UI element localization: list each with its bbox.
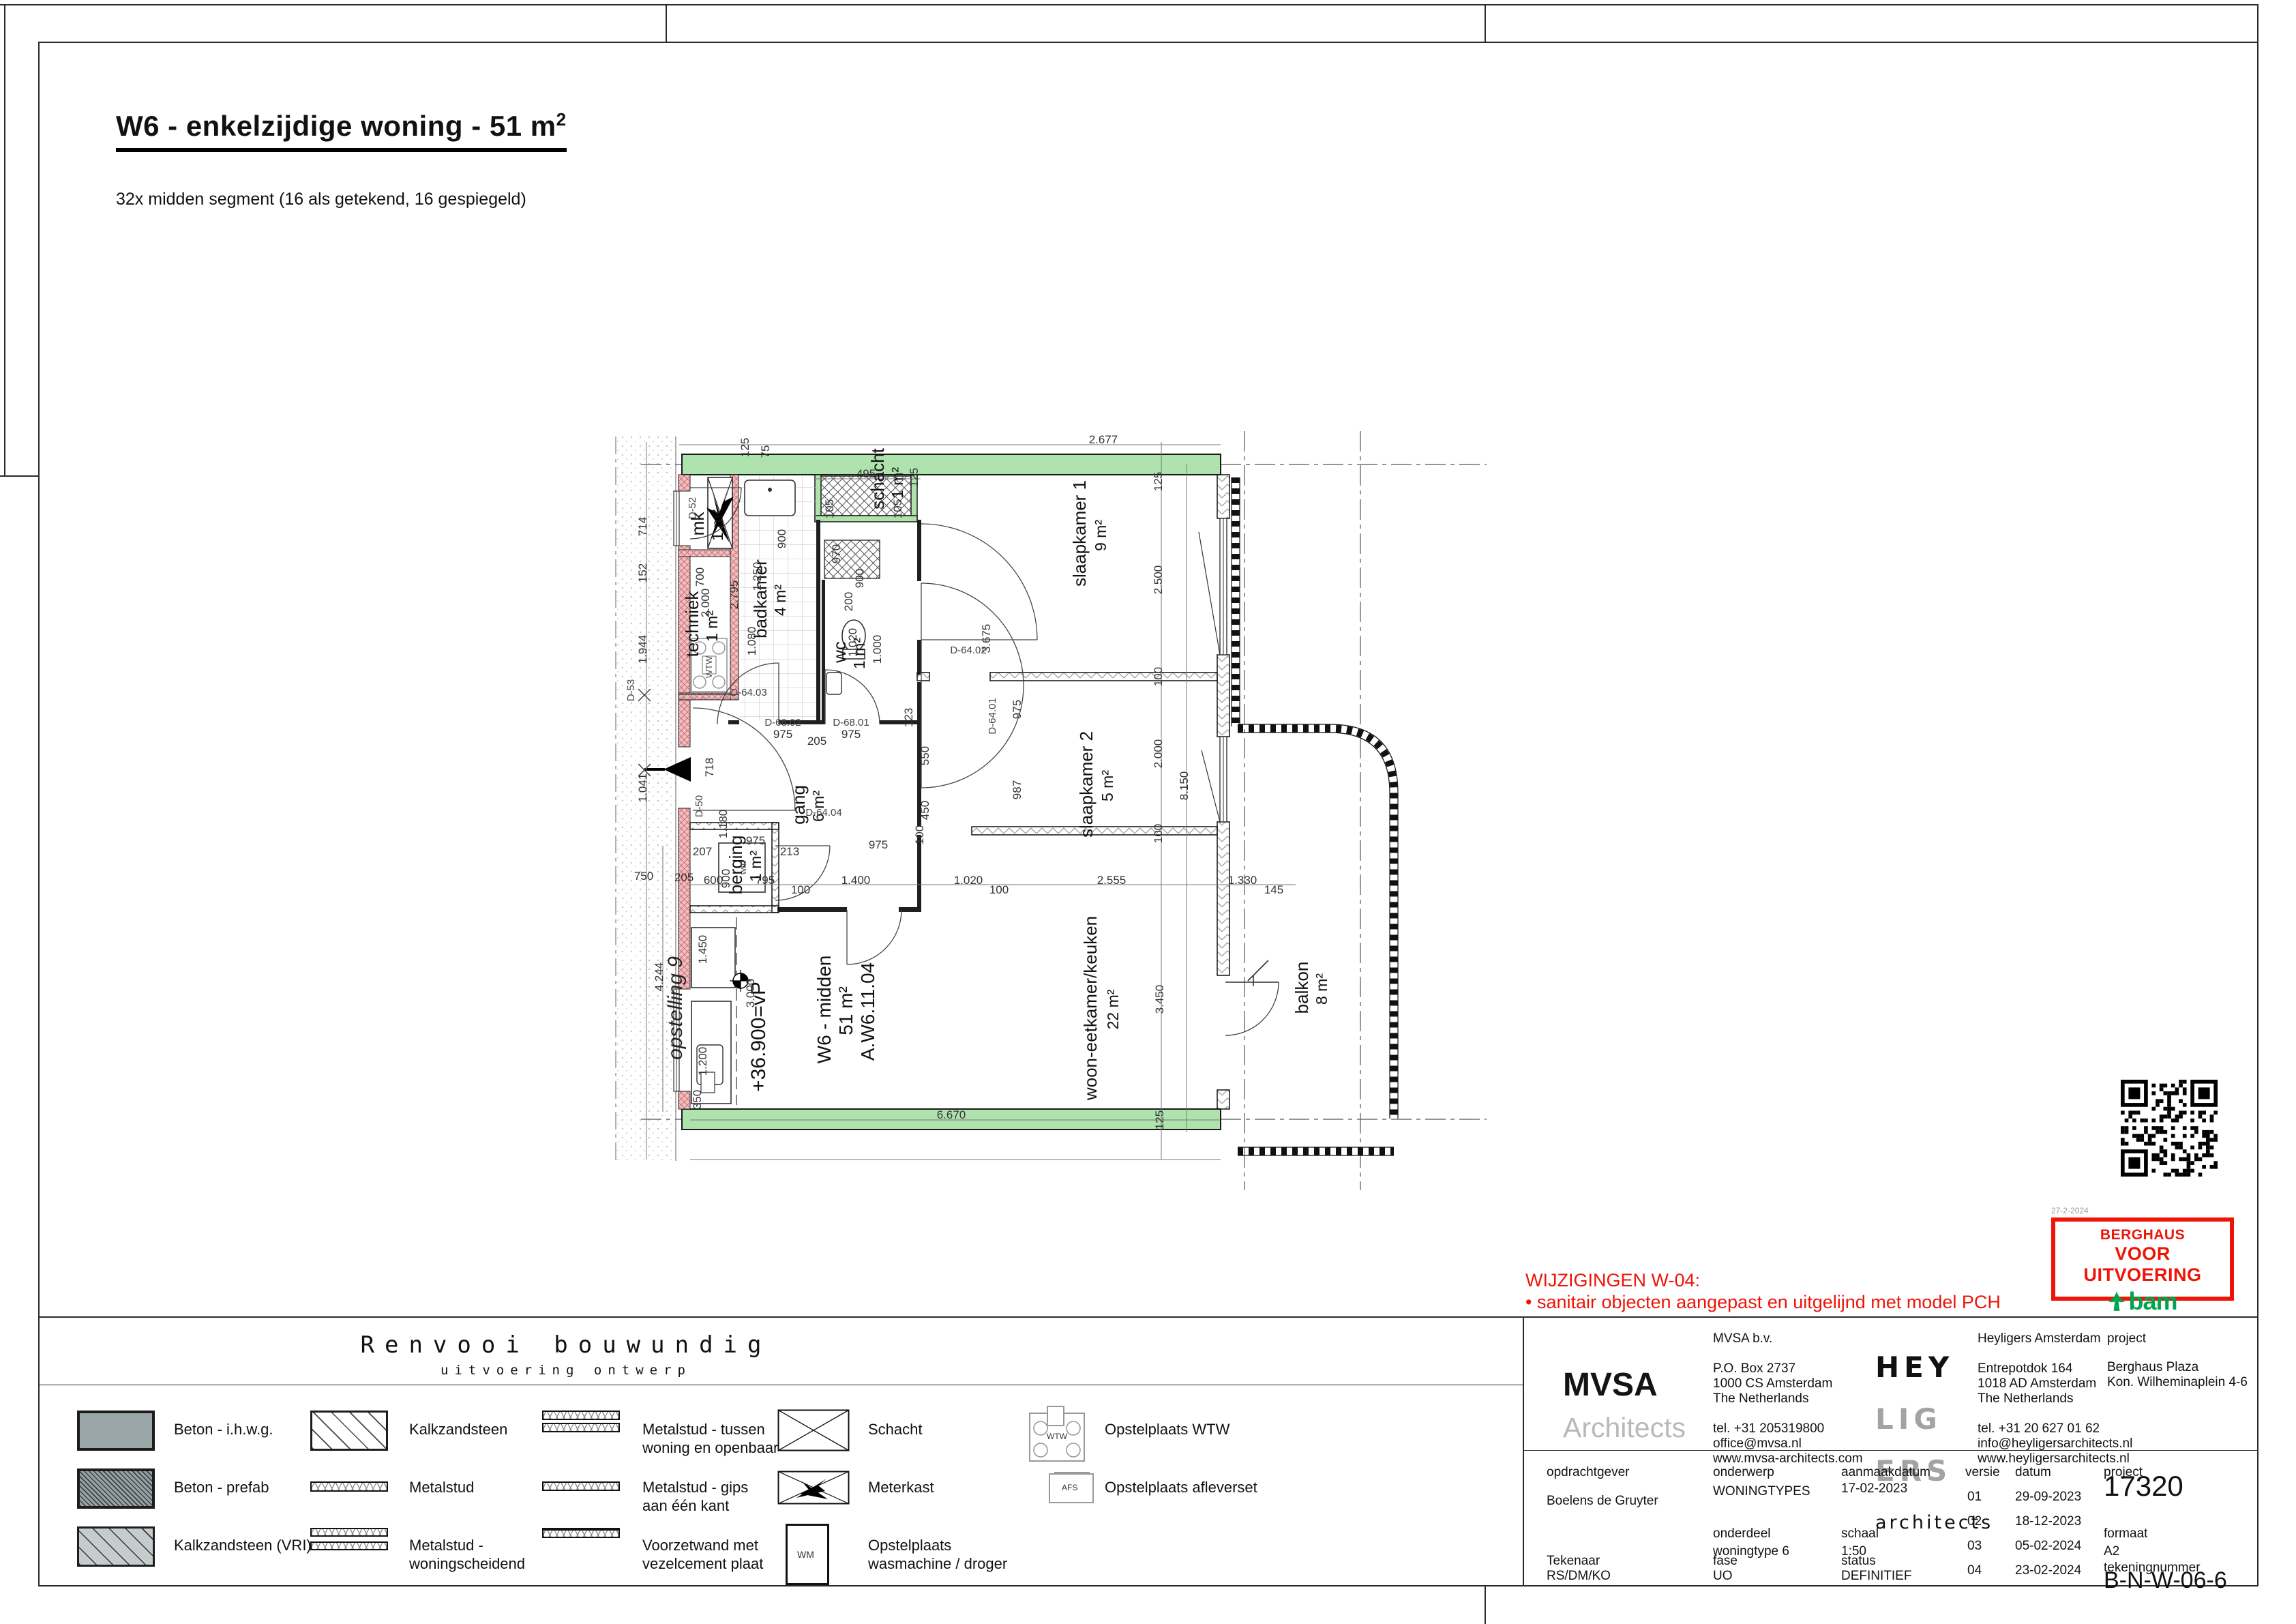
plan-door-label: D-64.04: [805, 807, 841, 818]
plan-door-label: D-68.02: [764, 717, 801, 728]
plan-dim-label: 2.555: [1097, 874, 1127, 887]
legend-swatch-wasmachine: WM: [786, 1524, 829, 1585]
plan-dim-label: 3.450: [1153, 985, 1166, 1014]
qr-code: [2121, 1080, 2218, 1177]
legend-label-wasmachine: Opstelplaats wasmachine / droger: [868, 1536, 1007, 1573]
versie-01: 01: [1967, 1490, 1982, 1505]
wm-box-text: WM: [797, 1549, 814, 1560]
sheet-left-edge: [4, 4, 5, 476]
tekenaar-value: RS/DM/KO: [1547, 1569, 1611, 1584]
plan-dim-label: 100: [791, 883, 810, 896]
changes-title: WIJZIGINGEN W-04:: [1525, 1270, 1700, 1291]
plan-dim-label: 350: [691, 1090, 704, 1109]
plan-big-label: A.W6.11.04: [857, 962, 878, 1061]
legend-titleblock-divider: [1523, 1316, 1524, 1586]
plan-dim-label: 125: [908, 468, 921, 487]
drawing-sheet: W6 - enkelzijdige woning - 51 m2 32x mid…: [0, 0, 2296, 1624]
approval-stamp: BERGHAUS VOOR UITVOERING bam: [2051, 1217, 2234, 1301]
opdrachtgever-label: opdrachtgever: [1547, 1465, 1629, 1480]
fase-value: UO: [1713, 1569, 1733, 1584]
legend-label-metalstud: Metalstud: [409, 1478, 474, 1496]
plan-dim-label: 495: [856, 467, 876, 480]
plan-dim-label: 2.795: [728, 580, 741, 610]
plan-room-label: slaapkamer 2: [1076, 731, 1097, 838]
wtw-box-text: WTW: [1047, 1432, 1068, 1441]
opdrachtgever-value: Boelens de Gruyter: [1547, 1494, 1658, 1509]
plan-dim-label: 1.020: [954, 874, 983, 887]
legend-label-kalkzandsteen: Kalkzandsteen: [409, 1420, 507, 1438]
legend-swatch-metalstud-gips: [542, 1481, 620, 1491]
legend-label-beton-prefab: Beton - prefab: [174, 1478, 269, 1496]
tekenaar-label: Tekenaar: [1547, 1554, 1600, 1569]
plan-dim-label: 4.244: [653, 962, 666, 992]
legend-swatch-afleverset: AFS: [1049, 1473, 1094, 1503]
plan-dim-label: 1.944: [636, 635, 649, 664]
plan-dim-label: 1.000: [871, 635, 884, 664]
page-title-text: W6 - enkelzijdige woning - 51 m: [116, 110, 556, 142]
plan-door-label: D-64.01: [987, 698, 998, 734]
plan-door-label: D-50: [694, 795, 705, 818]
legend-swatch-wtw: WTW: [1026, 1404, 1088, 1464]
plan-dim-label: 100: [913, 825, 926, 844]
mvsa-logo-line1: MVSA: [1563, 1366, 1686, 1404]
legend-swatch-metalstud: [310, 1481, 388, 1492]
plan-dim-label: 2.677: [1089, 433, 1118, 446]
plan-dim-label: 3.000: [744, 979, 757, 1008]
legend-swatch-metalstud-tussen-a: [542, 1411, 620, 1420]
balcony-railing: [1232, 477, 1398, 1155]
versie-03: 03: [1967, 1539, 1982, 1554]
plan-dim-label: 700: [694, 567, 706, 587]
page-title-sup: 2: [556, 109, 567, 130]
legend-swatch-kalkzandsteen: [310, 1411, 388, 1451]
mvsa-address: MVSA b.v. P.O. Box 2737 1000 CS Amsterda…: [1713, 1331, 1863, 1466]
plan-dim-label: 750: [634, 870, 653, 883]
onderdeel-label: onderdeel: [1713, 1526, 1771, 1541]
plan-dim-label: 100: [1152, 824, 1165, 843]
plan-dim-label: 125: [1153, 1110, 1166, 1130]
plan-dim-label: 207: [693, 845, 712, 858]
plan-area-label: 4 m²: [771, 585, 789, 616]
plan-dim-label: 975: [746, 834, 765, 847]
plan-dim-label: 975: [841, 728, 861, 741]
schaal-label: schaal: [1841, 1526, 1879, 1541]
legend-label-beton-ihwg: Beton - i.h.w.g.: [174, 1420, 273, 1438]
plan-dim-label: 100: [1152, 667, 1165, 686]
fase-label: fase: [1713, 1554, 1738, 1569]
aanmaakdatum-value: 17-02-2023: [1841, 1481, 1907, 1496]
plan-dim-label: 550: [919, 746, 931, 765]
plan-dim-label: 100: [989, 883, 1009, 896]
plan-area-label: 8 m²: [1313, 973, 1330, 1005]
plan-area-label: 9 m²: [1092, 520, 1109, 551]
status-value: DEFINITIEF: [1841, 1569, 1911, 1584]
legend-swatch-meterkast: [777, 1471, 850, 1505]
legend-swatch-metalstud-woningscheidend-b: [310, 1541, 388, 1550]
legend-label-schacht: Schacht: [868, 1420, 923, 1438]
plan-dim-label: 205: [674, 871, 694, 884]
plan-dim-label: 200: [842, 592, 855, 611]
legend-label-kalkzandsteen-vri: Kalkzandsteen (VRI): [174, 1536, 312, 1554]
plan-door-label: D-53: [625, 679, 637, 702]
fold-mark-left: [0, 475, 40, 477]
legend-swatch-beton-ihwg: [77, 1411, 155, 1451]
plan-dim-label: 1.041: [636, 773, 649, 803]
plan-dim-label: 987: [1011, 780, 1024, 799]
plan-fix-label: WTW: [704, 655, 714, 678]
plan-dim-label: 975: [773, 728, 792, 741]
sheet-top-edge: [0, 4, 2258, 5]
project-name: Berghaus Plaza: [2107, 1360, 2198, 1375]
project-num: 17320: [2104, 1479, 2183, 1494]
legend-label-voorzetwand: Voorzetwand met vezelcement plaat: [642, 1536, 763, 1573]
versie-04: 04: [1967, 1563, 1982, 1578]
plan-dim-label: 1.330: [1228, 874, 1257, 887]
legend-title: Renvooi bouwundig: [259, 1331, 873, 1359]
plan-room-label: woon-eetkamer/keuken: [1080, 916, 1101, 1101]
page-title: W6 - enkelzijdige woning - 51 m2: [116, 109, 567, 152]
legend-subtitle: uitvoering ontwerp: [259, 1363, 873, 1378]
plan-dim-label: 2.000: [1152, 739, 1165, 769]
legend-swatch-schacht: [777, 1409, 850, 1451]
plan-dim-label: 105: [891, 499, 904, 518]
legend-swatch-metalstud-woningscheidend-a: [310, 1528, 388, 1537]
plan-dim-label: 105: [823, 499, 836, 518]
project-address: Kon. Wilheminaplein 4-6: [2107, 1375, 2248, 1390]
frame-left: [38, 42, 40, 1586]
stamp-status: VOOR UITVOERING: [2055, 1243, 2230, 1286]
plan-dim-label: 718: [703, 758, 716, 777]
plan-dim-label: 125: [739, 438, 751, 457]
onderwerp-value: WONINGTYPES: [1713, 1484, 1810, 1499]
plan-dim-label: 900: [775, 529, 788, 548]
stamp-date-note: 27-2-2024: [2051, 1206, 2089, 1215]
plan-dim-label: 1.400: [841, 874, 871, 887]
plan-dim-label: 450: [919, 801, 931, 820]
plan-dim-label: 213: [780, 845, 799, 858]
datum-01: 29-09-2023: [2015, 1490, 2081, 1505]
sheet-right-edge: [2257, 4, 2258, 1586]
legend-header-underline: [38, 1385, 1523, 1385]
plan-dim-label: 975: [1011, 700, 1024, 719]
plan-door-label: D-64.02: [950, 645, 986, 656]
mvsa-logo: MVSA Architects: [1563, 1354, 1686, 1456]
plan-door-label: D-64.03: [730, 687, 766, 698]
plan-dim-label: 795: [756, 874, 775, 887]
plan-dim-label: 900: [719, 869, 732, 888]
afs-box-text: AFS: [1062, 1483, 1077, 1492]
bam-wordmark: bam: [2128, 1287, 2177, 1316]
legend-swatch-metalstud-tussen-b: [542, 1423, 620, 1432]
aanmaakdatum-label: aanmaakdatum: [1841, 1465, 1930, 1480]
legend-label-meterkast: Meterkast: [868, 1478, 934, 1496]
datum-02: 18-12-2023: [2015, 1514, 2081, 1529]
heyligers-address: Heyligers Amsterdam Entrepotdok 164 1018…: [1978, 1331, 2132, 1466]
plan-dim-label: 714: [636, 517, 649, 536]
plan-dim-label: 1.180: [717, 810, 730, 839]
versie-label: versie: [1965, 1465, 2000, 1480]
plan-door-label: D-68.01: [833, 717, 869, 728]
plan-dim-label: 900: [853, 569, 866, 588]
plan-dim-label: 125: [1152, 472, 1165, 491]
plan-big-label: W6 - midden: [814, 956, 835, 1064]
legend-label-metalstud-woningscheidend: Metalstud - woningscheidend: [409, 1536, 525, 1573]
plan-dim-label: 6.670: [937, 1108, 966, 1121]
legend-label-metalstud-gips: Metalstud - gips aan één kant: [642, 1478, 748, 1515]
tekeningnummer-value: B-N-W-06-6: [2104, 1573, 2227, 1588]
plan-dim-label: 970: [830, 544, 843, 563]
legend-swatch-voorzetwand: [542, 1528, 620, 1538]
plan-room-label: gang: [788, 785, 809, 825]
datum-03: 05-02-2024: [2015, 1539, 2081, 1554]
plan-area-label: 5 m²: [1099, 770, 1116, 801]
legend-label-afleverset: Opstelplaats afleverset: [1105, 1478, 1257, 1496]
plan-big-label: 51 m²: [835, 986, 856, 1035]
fold-mark-top-1: [666, 4, 667, 42]
plan-fix-label: wm: [738, 861, 748, 875]
versie-02: 02: [1967, 1514, 1982, 1529]
plan-dim-label: 152: [636, 563, 649, 582]
mvsa-logo-line2: Architects: [1563, 1412, 1686, 1444]
hey-logo-line1: HEY: [1875, 1355, 1993, 1381]
plan-door-label: D-52: [687, 497, 698, 520]
legend-swatch-beton-prefab: [77, 1468, 155, 1509]
frame-bottom: [38, 1585, 2258, 1586]
plan-dim-label: 1.450: [696, 935, 709, 964]
bottom-strip-top-line: [38, 1316, 2258, 1318]
plan-area-label: 22 m²: [1104, 989, 1122, 1029]
page-subtitle: 32x midden segment (16 als getekend, 16 …: [116, 190, 526, 209]
plan-area-label: 1 m²: [889, 467, 906, 499]
plan-ital-label: opstelling 9: [664, 956, 687, 1060]
plan-dim-label: 205: [807, 735, 826, 748]
hey-logo-line2: LIG: [1875, 1406, 1993, 1432]
plan-dim-label: 1.250: [751, 562, 764, 591]
onderwerp-label: onderwerp: [1713, 1465, 1774, 1480]
datum-label: datum: [2015, 1465, 2051, 1480]
bathroom-sink: [745, 480, 795, 516]
plan-dim-label: 1.200: [696, 1047, 709, 1076]
project-label: project: [2107, 1331, 2146, 1346]
legend-label-metalstud-tussen: Metalstud - tussen woning en openbaar: [642, 1420, 778, 1457]
plan-dim-label: 2.500: [1152, 565, 1165, 595]
plan-dim-label: 8.150: [1178, 771, 1191, 801]
fold-mark-bottom: [1485, 1585, 1486, 1624]
datum-04: 23-02-2024: [2015, 1563, 2081, 1578]
floor-plan: mk1 m²techniek1 m²badkamer4 m²schacht1 m…: [607, 428, 1487, 1199]
formaat-label: formaat: [2104, 1526, 2147, 1541]
plan-dim-label: 975: [869, 838, 888, 851]
bam-logo: bam: [2055, 1287, 2230, 1316]
plan-room-label: balkon: [1292, 962, 1312, 1014]
plan-dim-label: 1.080: [745, 627, 758, 656]
frame-top: [38, 42, 2258, 43]
formaat-value: A2: [2104, 1544, 2119, 1559]
fold-mark-top-2: [1485, 4, 1486, 42]
plan-dim-label: 75: [759, 445, 772, 458]
plan-dim-label: 145: [1264, 883, 1283, 896]
status-label: status: [1841, 1554, 1876, 1569]
plan-room-label: slaapkamer 1: [1069, 480, 1090, 587]
legend-label-wtw: Opstelplaats WTW: [1105, 1420, 1229, 1438]
stamp-company: BERGHAUS: [2055, 1227, 2230, 1243]
plan-area-label: 1 m²: [709, 510, 726, 541]
plan-dim-label: 1.020: [846, 628, 859, 658]
changes-item: • sanitair objecten aangepast en uitgeli…: [1525, 1292, 2001, 1313]
plan-dim-label: 2.000: [699, 589, 712, 618]
bam-tulip-icon: [2108, 1291, 2126, 1312]
legend-swatch-kalkzandsteen-vri: [77, 1526, 155, 1567]
plan-dim-label: 123: [902, 708, 915, 727]
